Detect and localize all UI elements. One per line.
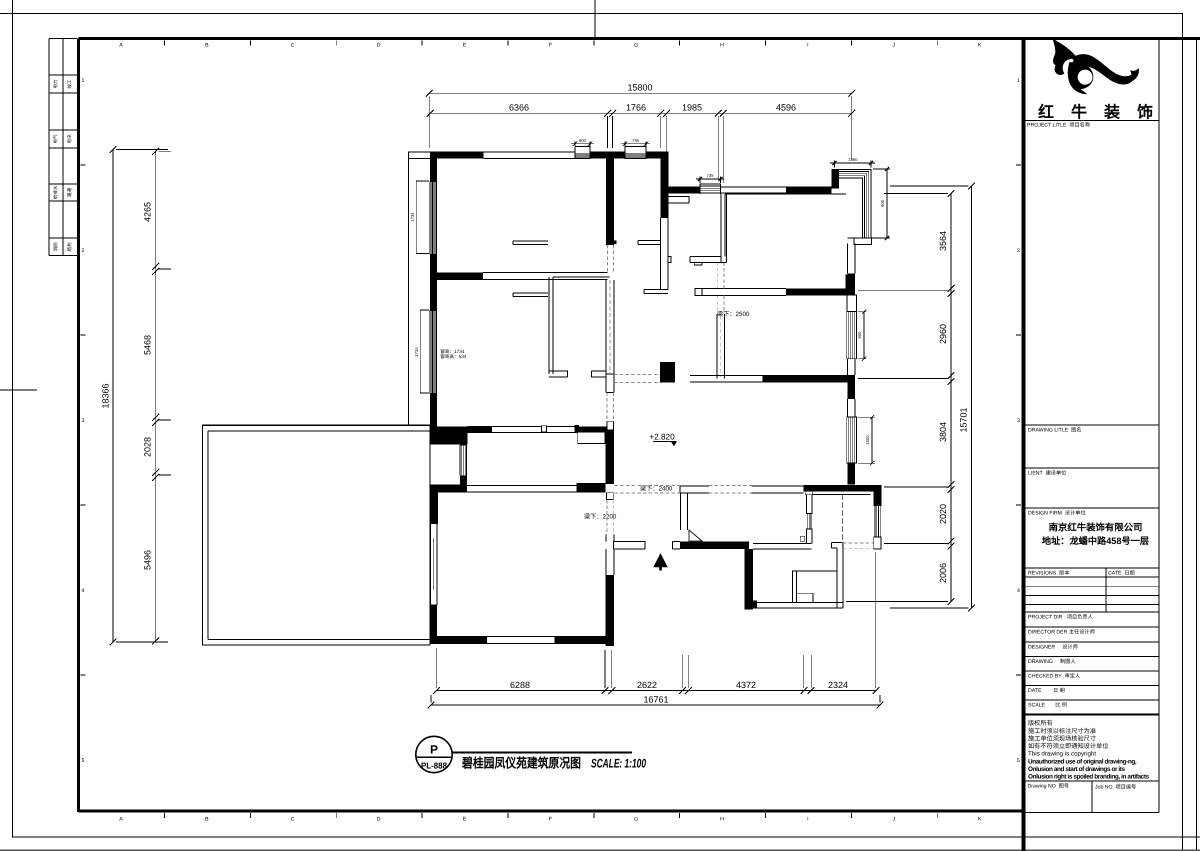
svg-text:电气: 电气 [53,134,58,144]
svg-text:CHECKED BY 审定人: CHECKED BY 审定人 [1028,673,1080,680]
svg-text:K: K [978,817,982,823]
svg-text:SCALE 比 例: SCALE 比 例 [1028,702,1067,709]
svg-text:PROJECT LITLE 项目名称: PROJECT LITLE 项目名称 [1027,122,1090,129]
svg-text:窗高：1734: 窗高：1734 [440,349,464,354]
svg-text:I: I [807,817,808,823]
svg-text:4265: 4265 [143,202,153,222]
svg-text:给排水: 给排水 [53,185,58,199]
svg-text:+2.820: +2.820 [649,433,675,442]
svg-text:4: 4 [1017,588,1020,594]
svg-text:5496: 5496 [143,550,153,570]
svg-text:如有不符须立即通知设计单位: 如有不符须立即通知设计单位 [1028,742,1108,750]
svg-text:This drawing is copyright: This drawing is copyright [1028,751,1096,758]
svg-text:A: A [119,817,123,823]
svg-text:D: D [377,817,381,823]
svg-text:地址：龙蟠中路458号一层: 地址：龙蟠中路458号一层 [1042,536,1149,546]
svg-text:2028: 2028 [143,437,153,457]
svg-text:D: D [377,43,381,49]
svg-text:15800: 15800 [627,83,652,93]
svg-text:结构: 结构 [67,242,72,252]
svg-text:P: P [430,743,438,757]
svg-text:I: I [807,43,808,49]
svg-text:DATE 日 期: DATE 日 期 [1028,687,1065,694]
svg-text:F: F [549,43,552,49]
svg-text:3: 3 [82,418,85,424]
svg-text:牛: 牛 [1071,104,1087,122]
svg-text:梁下：2200: 梁下：2200 [584,512,617,520]
svg-text:梁下：2500: 梁下：2500 [717,310,750,318]
svg-text:电力: 电力 [53,79,58,89]
svg-text:PROJECT DIR 项目负责人: PROJECT DIR 项目负责人 [1028,614,1093,621]
svg-text:1734: 1734 [414,347,419,357]
svg-text:1: 1 [82,78,85,84]
svg-text:E: E [463,43,467,49]
svg-text:900: 900 [579,138,587,143]
svg-text:DRAWING LITLE 图名: DRAWING LITLE 图名 [1028,427,1081,434]
svg-text:2324: 2324 [828,680,848,690]
svg-text:2020: 2020 [938,504,948,524]
svg-text:消防: 消防 [53,242,58,252]
svg-text:碧桂园凤仪苑建筑原况图: 碧桂园凤仪苑建筑原况图 [461,756,581,771]
svg-text:2: 2 [1017,248,1020,254]
svg-text:C: C [291,817,295,823]
svg-text:装: 装 [1103,104,1121,122]
svg-text:暖通: 暖通 [67,188,72,198]
svg-text:1985: 1985 [682,103,702,113]
svg-text:Drawing NO 图号: Drawing NO 图号 [1028,783,1070,790]
svg-text:Job NO 项目编号: Job NO 项目编号 [1095,784,1136,791]
svg-text:施工时须以标注尺寸为准: 施工时须以标注尺寸为准 [1028,727,1096,735]
svg-text:3804: 3804 [938,422,948,442]
svg-text:900: 900 [857,331,862,339]
svg-text:南京红牛装饰有限公司: 南京红牛装饰有限公司 [1049,522,1143,533]
svg-text:2960: 2960 [938,324,948,344]
svg-text:DESIGNER 设计师: DESIGNER 设计师 [1028,643,1078,650]
svg-text:3: 3 [1017,418,1020,424]
svg-text:4372: 4372 [736,680,756,690]
svg-text:2622: 2622 [637,680,657,690]
svg-text:B: B [205,817,209,823]
svg-text:F: F [549,817,552,823]
svg-text:DESIGN FIRM 设计单位: DESIGN FIRM 设计单位 [1028,510,1086,517]
svg-text:电讯: 电讯 [67,134,72,144]
svg-text:DRAWING 制图人: DRAWING 制图人 [1028,658,1076,665]
svg-text:K: K [978,43,982,49]
svg-text:6366: 6366 [509,103,529,113]
svg-text:6288: 6288 [510,680,530,690]
svg-text:905: 905 [880,199,885,207]
svg-text:4: 4 [82,588,85,594]
svg-text:REVISIONS 版本: REVISIONS 版本 [1028,570,1070,577]
svg-text:1734: 1734 [410,212,415,222]
svg-text:Onlusion right is spoiled bran: Onlusion right is spoiled branding, in a… [1028,774,1150,781]
svg-text:E: E [463,817,467,823]
svg-text:A: A [119,43,123,49]
svg-text:15701: 15701 [959,407,969,432]
svg-text:H: H [720,817,724,823]
svg-text:1500: 1500 [865,435,870,445]
svg-text:PL-888: PL-888 [421,761,447,771]
svg-text:2: 2 [82,248,85,254]
svg-text:DIRECTOR DER 主任设计师: DIRECTOR DER 主任设计师 [1028,629,1095,636]
svg-text:1766: 1766 [626,103,646,113]
svg-text:C: C [291,43,295,49]
svg-text:红: 红 [1038,104,1054,122]
svg-text:G: G [634,817,638,823]
svg-text:SCALE: 1:100: SCALE: 1:100 [591,757,646,771]
svg-text:4596: 4596 [776,103,796,113]
svg-text:18366: 18366 [101,383,111,408]
svg-text:16761: 16761 [643,694,668,704]
svg-text:3564: 3564 [938,231,948,251]
svg-text:J: J [892,43,895,49]
svg-text:5: 5 [82,758,85,764]
svg-text:H: H [720,43,724,49]
svg-text:饰: 饰 [1137,104,1153,122]
svg-text:B: B [205,43,209,49]
svg-text:2006: 2006 [938,563,948,583]
svg-text:窗底高：534: 窗底高：534 [440,354,466,359]
svg-text:施工单位须现场核验尺寸: 施工单位须现场核验尺寸 [1028,735,1096,743]
svg-text:Unauthorized use of original d: Unauthorized use of original drawing-ng, [1028,759,1137,766]
svg-text:竣工: 竣工 [67,79,72,89]
svg-text:1360: 1360 [848,157,858,162]
svg-text:5468: 5468 [143,335,153,355]
svg-text:版权所有: 版权所有 [1028,719,1053,727]
svg-text:CATE 日期: CATE 日期 [1108,570,1135,577]
svg-text:1: 1 [1017,78,1020,84]
svg-text:LIENT 建设单位: LIENT 建设单位 [1028,470,1066,477]
svg-text:735: 735 [632,138,640,143]
svg-text:Onlusion and start of drawings: Onlusion and start of drawings or its [1028,766,1126,773]
svg-text:5: 5 [1017,758,1020,764]
svg-text:G: G [634,43,638,49]
svg-text:J: J [892,817,895,823]
svg-text:735: 735 [707,173,715,178]
